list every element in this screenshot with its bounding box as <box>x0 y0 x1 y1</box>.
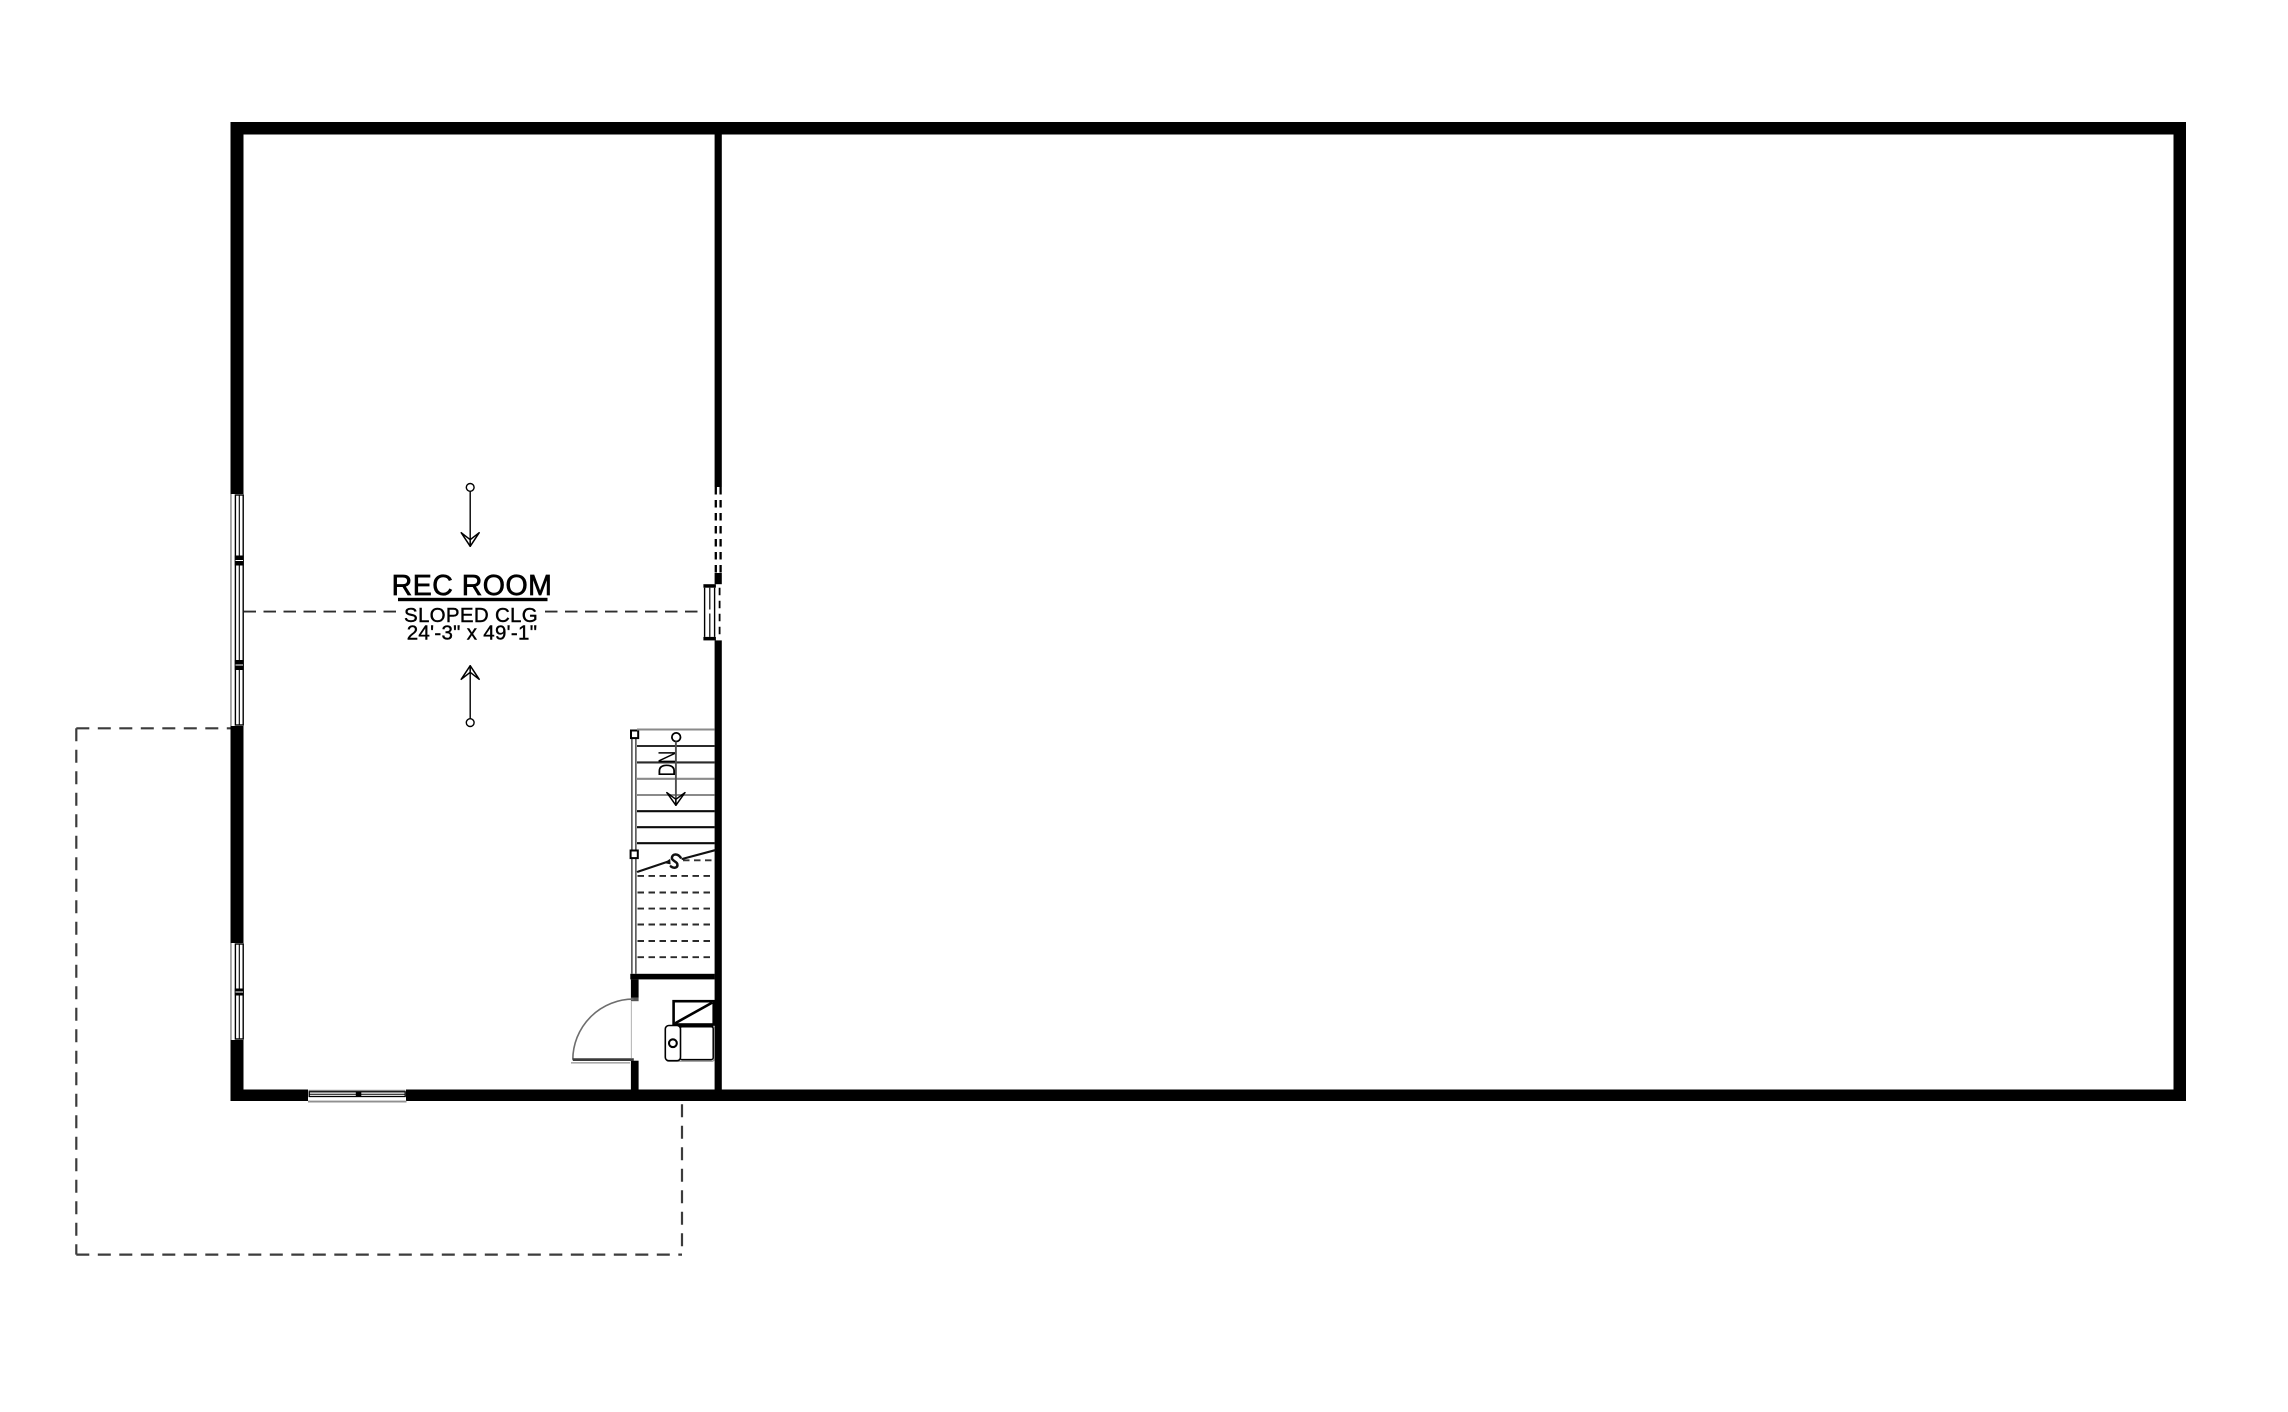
svg-text:24'-3" x 49'-1": 24'-3" x 49'-1" <box>407 622 538 645</box>
svg-text:REC ROOM: REC ROOM <box>392 570 553 602</box>
